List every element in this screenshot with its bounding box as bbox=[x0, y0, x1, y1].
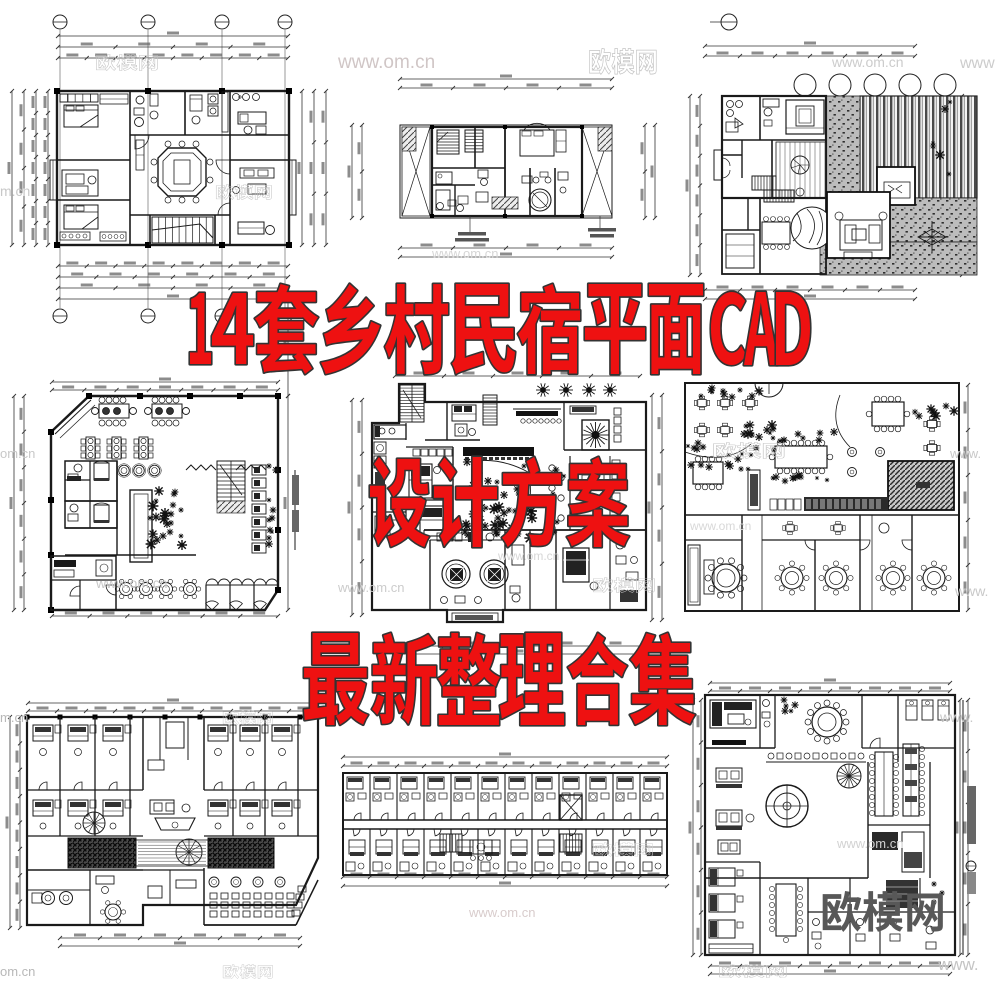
svg-text:om.cn: om.cn bbox=[0, 964, 35, 979]
svg-text:www.om.cn: www.om.cn bbox=[431, 246, 498, 261]
svg-text:www.om.cn: www.om.cn bbox=[468, 905, 535, 920]
svg-text:m.cn: m.cn bbox=[0, 183, 30, 199]
svg-text:www.: www. bbox=[954, 583, 988, 599]
svg-text:www.: www. bbox=[939, 709, 973, 725]
svg-text:www.: www. bbox=[937, 955, 979, 974]
svg-text:www.om.cn: www.om.cn bbox=[337, 52, 435, 73]
svg-text:www.om.cn: www.om.cn bbox=[689, 519, 751, 533]
svg-text:m.cn: m.cn bbox=[0, 710, 28, 725]
svg-text:www: www bbox=[959, 55, 995, 72]
svg-text:www.om.cn: www.om.cn bbox=[831, 54, 904, 70]
svg-text:www.: www. bbox=[949, 446, 981, 461]
svg-text:om.cn: om.cn bbox=[0, 446, 35, 461]
svg-text:www.om.cn: www.om.cn bbox=[95, 575, 168, 591]
svg-text:www.om.cn: www.om.cn bbox=[836, 836, 903, 851]
svg-text:www.om.cn: www.om.cn bbox=[337, 580, 404, 595]
svg-text:www.om.cn: www.om.cn bbox=[497, 549, 559, 563]
